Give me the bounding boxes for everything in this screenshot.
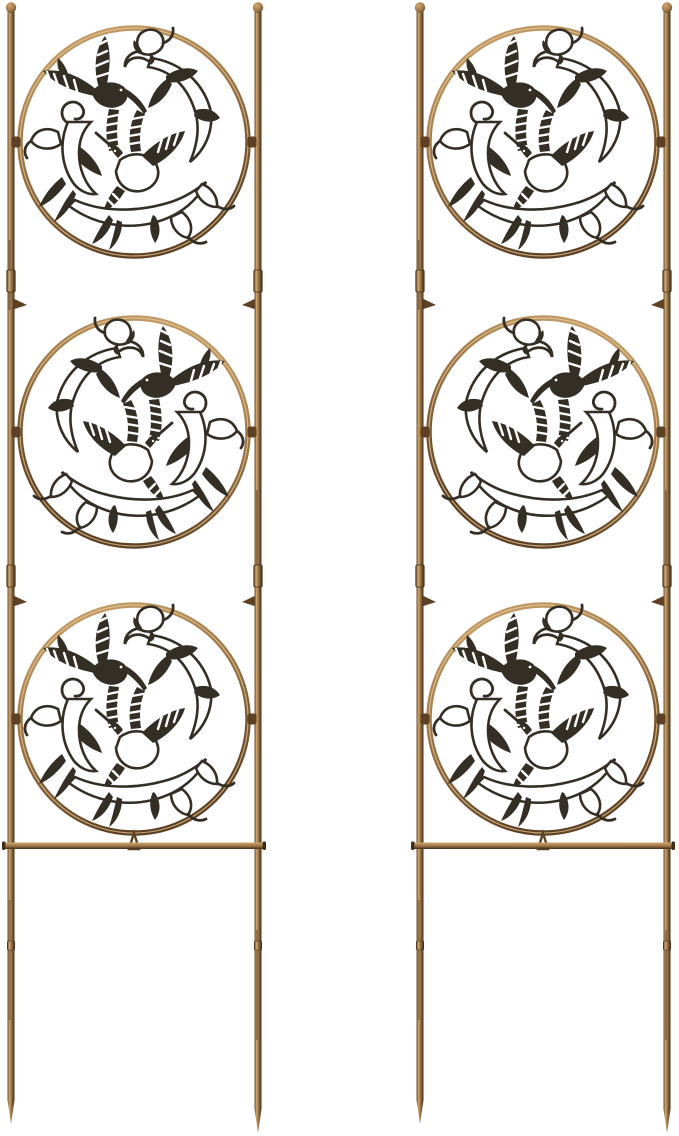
product-photo [0, 0, 679, 1136]
trellis-panel-left [2, 2, 266, 1133]
trellis-pair-image [0, 0, 679, 1136]
trellis-panel-right [411, 2, 675, 1133]
